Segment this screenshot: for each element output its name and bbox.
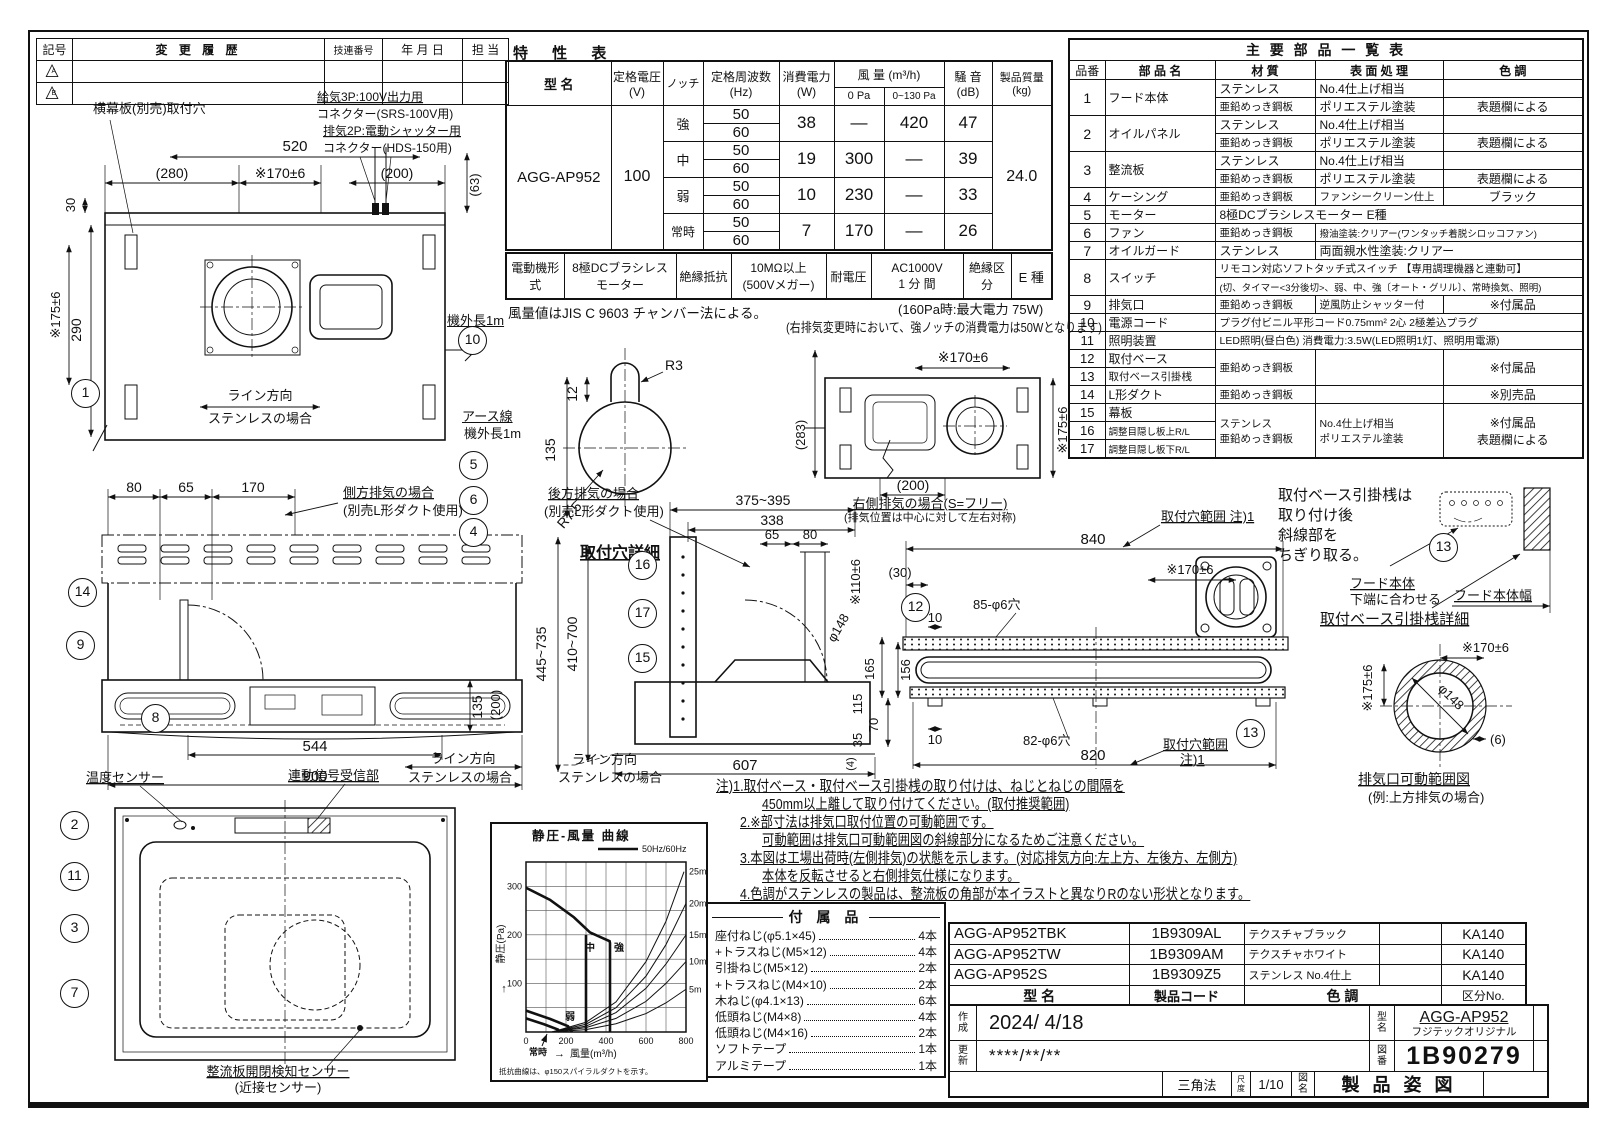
variant-code: 1B9309AM: [1129, 944, 1244, 965]
insulation-class-label: 絶縁区分: [963, 253, 1011, 299]
plan-label-side-panel-hole: 横幕板(別売)取付穴: [93, 101, 206, 116]
side-exhaust-label: 側方排気の場合: [343, 485, 434, 500]
parts-h-no: 品番: [1069, 61, 1105, 80]
spec-note-160pa: (160Pa時:最大電力 75W): [898, 299, 1043, 318]
table-row: 14L形ダクト亜鉛めっき鋼板※別売品: [1069, 386, 1583, 404]
note-1a: 注)1.取付ベース・取付ベース引掛桟の取り付けは、ねじとねじの間隔を: [716, 778, 1125, 795]
mounting-range-label-top: 取付穴範囲 注)1: [1161, 509, 1254, 524]
list-item: 低頭ねじ(M4×16)2本: [708, 1025, 944, 1041]
chart-ylabel: 静圧(Pa): [494, 925, 507, 964]
dim-12: 12: [564, 386, 580, 402]
balloon-5: 5: [459, 451, 488, 480]
spec-freq: 50: [703, 177, 779, 195]
spec-airflow-0: 170: [834, 213, 884, 250]
chart-axis-part: 0: [523, 1036, 528, 1046]
chart-axis-part: 400: [598, 1036, 613, 1046]
balloon-14: 14: [68, 578, 97, 607]
dim-63: (63): [467, 173, 482, 196]
spec-notch: 中: [663, 141, 703, 177]
spec-noise: 26: [944, 213, 992, 250]
revision-h-date: 年 月 日: [383, 39, 463, 61]
spec-airflow-0: 300: [834, 141, 884, 177]
x-axis-arrow: →: [554, 1048, 565, 1060]
spec-h-airflow-0pa: 0 Pa: [834, 87, 884, 105]
table-row: 9排気口亜鉛めっき鋼板逆風防止シャッター付※付属品: [1069, 296, 1583, 314]
chart-curve: [526, 888, 610, 1032]
insulation-res-label: 絶縁抵抗: [676, 253, 731, 299]
list-item: 引掛ねじ(M5×12)2本: [708, 960, 944, 976]
accessories-box: 付 属 品 座付ねじ(φ5.1×45)4本 +トラスねじ(M5×12)4本 引掛…: [706, 902, 946, 1078]
insulation-res-value: 10MΩ以上 (500Vメガー): [731, 253, 826, 299]
spec-h-voltage: 定格電圧 (V): [611, 61, 663, 105]
dim-290: 290: [68, 318, 84, 342]
motor-spec-table: 電動機形式 8極DCブラシレス モーター 絶縁抵抗 10MΩ以上 (500Vメガ…: [505, 252, 1053, 300]
dim-135: 135: [542, 438, 558, 462]
note-2a: 2.※部寸法は排気口取付位置の可動範囲です。: [740, 815, 994, 832]
interlock-receiver-label: 連動信号受信部: [288, 768, 379, 783]
spec-freq: 50: [703, 213, 779, 231]
curve-label-mid: 中: [585, 941, 595, 954]
dim-r3: R3: [665, 357, 683, 373]
list-item: +トラスねじ(M5×12)4本: [708, 944, 944, 960]
hook-note-line4: ちぎり取る。: [1278, 547, 1368, 564]
dim-110: ※110±6: [848, 559, 863, 605]
dim-170: 170: [241, 479, 265, 495]
list-item: 木ねじ(φ4.1×13)6本: [708, 993, 944, 1009]
variant-kubun: KA140: [1441, 923, 1526, 944]
side-view-geometry: [558, 502, 875, 779]
dim-135: 135: [469, 695, 485, 719]
note-1b: 450mm以上離して取り付けてください。(取付推奨範囲): [762, 797, 1069, 814]
exhaust-range-example: (例:上方排気の場合): [1368, 790, 1484, 805]
plan-label-line-direction: ライン方向: [227, 388, 292, 403]
variant-color: ステンレス No.4仕上: [1244, 965, 1379, 986]
label-85-holes: 85-φ6穴: [973, 597, 1020, 612]
dim-156: 156: [898, 659, 913, 681]
dim-283: (283): [793, 420, 808, 450]
chart-footnote: 抵抗曲線は、φ150スパイラルダクトを示す。: [499, 1066, 653, 1076]
variant-color: テクスチャブラック: [1244, 923, 1379, 944]
hook-note-line1: 取付ベース引掛桟は: [1278, 487, 1412, 504]
dim-80: 80: [803, 527, 817, 542]
table-row: AGG-AP952TBK 1B9309AL テクスチャブラック KA140: [949, 923, 1526, 944]
revision-row: △A: [37, 61, 509, 83]
parts-h-material: 材 質: [1215, 61, 1315, 80]
variant-model: AGG-AP952TBK: [949, 923, 1129, 944]
note-2b: 可動範囲は排気口可動範囲図の斜線部分になるためご注意ください。: [762, 833, 1144, 850]
dim-70: 70: [866, 718, 881, 732]
dim-840: 840: [1080, 531, 1105, 548]
title-block-row: 作 成 2024/ 4/18 型 名 AGG-AP952 フジテックオリジナル: [950, 1006, 1547, 1041]
dim-607: 607: [732, 757, 757, 774]
y-axis-arrow: ↑: [501, 983, 507, 995]
front-line-direction: ライン方向: [430, 751, 495, 766]
curve-label-weak: 弱: [565, 1011, 575, 1023]
table-row: 3整流板ステンレスNo.4仕上げ相当: [1069, 152, 1583, 170]
chart-geometry: 25m20m15m10m5m0200400600800100200300: [507, 862, 707, 1046]
proximity-sensor-label: (近接センサー): [235, 1080, 322, 1095]
dim-175: ※175±6: [1055, 407, 1070, 454]
list-item: 座付ねじ(φ5.1×45)4本: [708, 928, 944, 944]
variants-table: AGG-AP952TBK 1B9309AL テクスチャブラック KA140 AG…: [948, 922, 1527, 1008]
spec-noise: 33: [944, 177, 992, 213]
side-stainless-case: ステンレスの場合: [558, 770, 662, 785]
spec-power: 19: [779, 141, 834, 177]
spec-power: 38: [779, 105, 834, 141]
spec-h-mass: 製品質量 (kg): [992, 61, 1052, 105]
chart-axis-part: 200: [558, 1036, 573, 1046]
brand-value: フジテックオリジナル: [1412, 1026, 1517, 1038]
dim-175: ※175±6: [1360, 665, 1375, 712]
hook-note-line2: 取り付け後: [1278, 507, 1353, 524]
spec-mass: 24.0: [992, 105, 1052, 250]
revision-h-mark: 記号: [37, 39, 73, 61]
title-block: 作 成 2024/ 4/18 型 名 AGG-AP952 フジテックオリジナル …: [948, 1004, 1549, 1098]
chart-axis-part: 300: [507, 881, 522, 891]
spec-freq: 50: [703, 141, 779, 159]
table-row: 15幕板ステンレス 亜鉛めっき鋼板No.4仕上げ相当 ポリエステル塗装※付属品 …: [1069, 404, 1583, 422]
balloon-10: 10: [458, 326, 487, 355]
model-cell: AGG-AP952 フジテックオリジナル: [1395, 1006, 1534, 1040]
dim-30: 30: [63, 198, 78, 212]
balloon-16: 16: [628, 551, 657, 580]
rear-exhaust-label: 後方排気の場合: [548, 486, 639, 501]
table-row: AGG-AP952TW 1B9309AM テクスチャホワイト KA140: [949, 944, 1526, 965]
dim-200: (200): [897, 477, 930, 493]
note-4: 4.色調がステンレスの製品は、整流板の角部が本イラストと異なりRのない形状となり…: [740, 887, 1250, 904]
plan-label-connector-srs: コネクター(SRS-100V用): [317, 107, 453, 121]
parts-h-name: 部 品 名: [1105, 61, 1215, 80]
dim-165: 165: [862, 658, 877, 680]
bottom-view-geometry: [115, 784, 455, 1066]
spec-airflow-130: —: [884, 177, 944, 213]
temp-sensor-label: 温度センサー: [86, 770, 164, 785]
plan-label-supply-3p: 給気3P:100V出力用: [317, 89, 423, 104]
motor-type-value: 8極DCブラシレス モーター: [564, 253, 676, 299]
spec-h-power: 消費電力 (W): [779, 61, 834, 105]
table-row: AGG-AP952S 1B9309Z5 ステンレス No.4仕上 KA140: [949, 965, 1526, 986]
chart-title: 静圧-風量 曲線: [532, 828, 631, 843]
dim-65: 65: [178, 479, 194, 495]
list-item: アルミテープ1本: [708, 1058, 944, 1074]
parts-title: 主 要 部 品 一 覧 表: [1069, 39, 1583, 61]
drawing-sheet: 記号 変 更 履 歴 技連番号 年 月 日 担 当 △A △B 特 性 表 型 …: [0, 0, 1600, 1131]
accessories-title-row: 付 属 品: [712, 907, 940, 927]
dim-544: 544: [302, 738, 327, 755]
chart-axis-part: 100: [507, 978, 522, 988]
dim-65: 65: [765, 527, 779, 542]
variant-code: 1B9309Z5: [1129, 965, 1244, 986]
fan-curve-chart: 25m20m15m10m5m0200400600800100200300 静圧-…: [490, 822, 708, 1082]
balloon-1: 1: [71, 379, 100, 408]
chart-axis-part: 5m: [689, 984, 702, 994]
dim-phi148: φ148: [824, 611, 852, 645]
dwg-no-value: 1B90279: [1395, 1041, 1534, 1071]
legend-label: 50Hz/60Hz: [642, 844, 687, 854]
spec-note-jis: 風量値はJIS C 9603 チャンバー法による。: [508, 302, 767, 322]
created-date: 2024/ 4/18: [977, 1006, 1370, 1040]
spec-airflow-130: —: [884, 213, 944, 250]
dim-10-top: 10: [928, 610, 942, 625]
spec-freq: 60: [703, 195, 779, 213]
hood-body-width-label: フード本体幅: [1454, 588, 1532, 603]
dim-175: ※175±6: [48, 292, 63, 339]
curve-label-strong: 強: [614, 941, 624, 954]
dim-115: 115: [850, 694, 865, 715]
accessories-title: 付 属 品: [783, 907, 870, 927]
variant-model: AGG-AP952TW: [949, 944, 1129, 965]
dim-338: 338: [760, 512, 784, 528]
dim-200: (200): [381, 165, 414, 181]
revision-h-history: 変 更 履 歴: [73, 39, 325, 61]
chart-axis-part: 800: [678, 1036, 693, 1046]
variant-kubun: KA140: [1441, 965, 1526, 986]
spec-freq: 60: [703, 123, 779, 141]
earth-wire-length-label: 機外長1m: [464, 423, 521, 442]
hood-body-label: フード本体: [1350, 576, 1415, 591]
list-item: +トラスねじ(M4×10)2本: [708, 977, 944, 993]
chart-axis-part: 600: [638, 1036, 653, 1046]
spec-airflow-130: —: [884, 141, 944, 177]
hood-bottom-align-label: 下端に合わせる: [1350, 592, 1441, 607]
dim-200: (200): [488, 690, 503, 720]
balloon-7: 7: [60, 979, 89, 1008]
spec-airflow-0: —: [834, 105, 884, 141]
spec-freq: 60: [703, 159, 779, 177]
hook-rail-geometry: [1380, 488, 1550, 770]
curve-label-constant: 常時: [529, 1046, 547, 1057]
scale-value: 1/10: [1251, 1072, 1292, 1096]
spec-notch: 常時: [663, 213, 703, 250]
balloon-17: 17: [628, 599, 657, 628]
spec-model: AGG-AP952: [506, 105, 611, 250]
chart-axis-part: 200: [507, 930, 522, 940]
parts-h-finish: 表 面 処 理: [1315, 61, 1443, 80]
balloon-11: 11: [60, 862, 89, 891]
dim-445-735: 445~735: [533, 626, 549, 681]
dim-170: ※170±6: [1462, 640, 1509, 655]
scale-label: 尺 度: [1232, 1072, 1251, 1096]
table-row: 2オイルパネルステンレスNo.4仕上げ相当: [1069, 116, 1583, 134]
withstand-v-value: AC1000V 1 分 間: [871, 253, 963, 299]
balloon-8: 8: [141, 704, 170, 733]
spec-h-noise: 騒 音 (dB): [944, 61, 992, 105]
balloon-6: 6: [459, 486, 488, 515]
spec-notch: 強: [663, 105, 703, 141]
updated-label: 更 新: [950, 1041, 977, 1071]
dim-170: ※170±6: [255, 165, 306, 181]
variant-color: テクスチャホワイト: [1244, 944, 1379, 965]
hook-note-line3: 斜線部を: [1278, 527, 1338, 544]
balloon-3: 3: [60, 914, 89, 943]
chart-axis-part: 25m: [689, 867, 707, 877]
chart-xlabel: 風量(m³/h): [570, 1048, 617, 1060]
variant-code: 1B9309AL: [1129, 923, 1244, 944]
dim-280: (280): [156, 165, 189, 181]
list-item: 低頭ねじ(M4×8)4本: [708, 1009, 944, 1025]
balloon-13-detail: 13: [1429, 533, 1458, 562]
balloon-12: 12: [901, 593, 930, 622]
revision-h-no: 技連番号: [325, 39, 383, 61]
spec-airflow-0: 230: [834, 177, 884, 213]
spec-noise: 47: [944, 105, 992, 141]
spec-table: 型 名 定格電圧 (V) ノッチ 定格周波数 (Hz) 消費電力 (W) 風 量…: [505, 60, 1053, 251]
updated-date: ****/**/**: [977, 1041, 1370, 1071]
spec-notch: 弱: [663, 177, 703, 213]
dim-80: 80: [126, 479, 142, 495]
table-row: 5モーター8極DCブラシレスモーター E種: [1069, 206, 1583, 224]
mounting-range-label-bottom: 取付穴範囲: [1163, 737, 1228, 752]
dwg-name-label: 図 名: [1292, 1072, 1315, 1096]
balloon-15: 15: [628, 644, 657, 673]
table-row: 4ケーシング亜鉛めっき鋼板ファンシークリーン仕上ブラック: [1069, 188, 1583, 206]
plan-label-exhaust-2p: 排気2P:電動シャッター用: [323, 123, 461, 138]
revision-header: 記号 変 更 履 歴 技連番号 年 月 日 担 当: [37, 39, 509, 61]
plan-view-drawing: 横幕板(別売)取付穴 給気3P:100V出力用 コネクター(SRS-100V用)…: [55, 85, 487, 477]
spec-freq: 50: [703, 105, 779, 123]
spec-power: 10: [779, 177, 834, 213]
created-label: 作 成: [950, 1006, 977, 1040]
spec-power: 7: [779, 213, 834, 250]
mounting-range-note-ref: 注)1: [1180, 752, 1205, 767]
baffle-sensor-label: 整流板開閉検知センサー: [206, 1064, 349, 1079]
model-value: AGG-AP952: [1420, 1009, 1509, 1026]
dwg-no-label: 図 番: [1370, 1041, 1395, 1071]
chart-axis-part: 15m: [689, 930, 707, 940]
spec-h-airflow: 風 量 (m³/h): [834, 61, 944, 87]
notes-block: 注)1.取付ベース・取付ベース引掛桟の取り付けは、ねじとねじの間隔を 450mm…: [716, 778, 1340, 904]
spec-noise: 39: [944, 141, 992, 177]
dim-170: ※170±6: [938, 349, 989, 365]
spec-h-airflow-130pa: 0~130 Pa: [884, 87, 944, 105]
dwg-name-value: 製 品 姿 図: [1315, 1072, 1484, 1096]
spec-note-right-exhaust: (右排気変更時において、強ノッチの消費電力は50Wとなります): [786, 317, 1102, 336]
hook-rail-detail-caption: 取付ベース引掛桟詳細: [1320, 611, 1469, 628]
dim-375-395: 375~395: [736, 492, 791, 508]
parts-h-color: 色 調: [1443, 61, 1583, 80]
variant-model: AGG-AP952S: [949, 965, 1129, 986]
side-line-direction: ライン方向: [572, 752, 637, 767]
withstand-v-label: 耐電圧: [826, 253, 871, 299]
table-row: 7オイルガードステンレス両面親水性塗装:クリアー: [1069, 242, 1583, 260]
dim-6: (6): [1490, 732, 1506, 747]
spec-h-freq: 定格周波数 (Hz): [703, 61, 779, 105]
spec-freq: 60: [703, 231, 779, 250]
table-row: 12取付ベース亜鉛めっき鋼板※付属品: [1069, 350, 1583, 368]
parts-table: 主 要 部 品 一 覧 表 品番 部 品 名 材 質 表 面 処 理 色 調 1…: [1068, 38, 1584, 459]
plan-label-stainless-case: ステンレスの場合: [208, 411, 312, 426]
chart-axis-part: 20m: [689, 898, 707, 908]
table-row: 8スイッチリモコン対応ソフトタッチ式スイッチ 【専用調理機器と連動可】: [1069, 260, 1583, 278]
dim-30: (30): [888, 565, 911, 580]
spec-airflow-130: 420: [884, 105, 944, 141]
label-82-holes: 82-φ6穴: [1023, 733, 1070, 748]
insulation-class-value: E 種: [1011, 253, 1052, 299]
plan-label-connector-hds: コネクター(HDS-150用): [323, 141, 452, 155]
revision-h-staff: 担 当: [463, 39, 509, 61]
table-row: 6ファン亜鉛めっき鋼板撥油塗装:クリアー(ワンタッチ着脱シロッコファン): [1069, 224, 1583, 242]
title-block-row: 三角法 尺 度 1/10 図 名 製 品 姿 図: [950, 1072, 1547, 1096]
dim-10-bottom: 10: [928, 732, 942, 747]
dim-520: 520: [282, 138, 307, 155]
dim-35: 35: [850, 733, 865, 747]
chart-axis-part: 10m: [689, 957, 707, 967]
variant-kubun: KA140: [1441, 944, 1526, 965]
balloon-2: 2: [60, 811, 89, 840]
spec-voltage: 100: [611, 105, 663, 250]
balloon-13: 13: [1236, 719, 1265, 748]
balloon-4: 4: [459, 518, 488, 547]
motor-type-label: 電動機形式: [506, 253, 564, 299]
note-3b: 本体を反転させると右側排気仕様になります。: [762, 869, 1020, 886]
bottom-view-drawing: 温度センサー 連動信号受信部 整流板開閉検知センサー (近接センサー): [60, 770, 485, 1085]
mounting-range-geometry: [882, 525, 1288, 769]
list-item: ソフトテープ1本: [708, 1041, 944, 1057]
balloon-9: 9: [66, 631, 95, 660]
table-row: 1フード本体ステンレスNo.4仕上げ相当: [1069, 80, 1583, 98]
spec-h-model: 型 名: [506, 61, 611, 105]
rear-exhaust-note: (別売L形ダクト使用): [544, 504, 664, 519]
note-3a: 3.本図は工場出荷時(左側排気)の状態を示します。(対応排気方向:左上方、左後方…: [740, 851, 1237, 868]
dim-820: 820: [1080, 747, 1105, 764]
dim-4: (4): [845, 757, 857, 770]
hook-rail-detail-drawing: 取付ベース引掛桟は 取り付け後 斜線部を ちぎり取る。 フード本体 下端に合わせ…: [1272, 478, 1585, 808]
mounting-range-view-drawing: 取付穴範囲 注)1 840 (30) ※170±6 85-φ6穴 10 165 …: [868, 497, 1300, 789]
exhaust-range-caption: 排気口可動範囲図: [1358, 771, 1470, 787]
projection-method: 三角法: [1163, 1072, 1232, 1096]
side-exhaust-note: (別売L形ダクト使用): [343, 503, 463, 518]
revision-triangle-a: △A: [46, 62, 64, 79]
model-label: 型 名: [1370, 1006, 1395, 1040]
title-block-row: 更 新 ****/**/** 図 番 1B90279: [950, 1041, 1547, 1072]
constant-arrow: [542, 1034, 547, 1046]
spec-h-notch: ノッチ: [663, 61, 703, 105]
dim-170: ※170±6: [1167, 562, 1214, 577]
dim-410-700: 410~700: [564, 616, 580, 671]
